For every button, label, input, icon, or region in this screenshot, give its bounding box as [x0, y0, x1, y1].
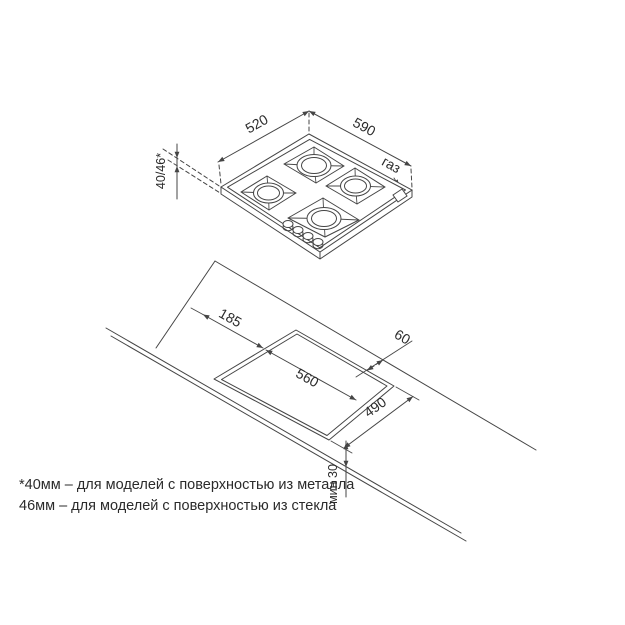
cutout-depth-label: 490: [361, 393, 389, 420]
cutout-offset-ext-line: [191, 308, 203, 315]
hob-thickness-dim: 40/46*: [154, 144, 221, 199]
footnotes: *40мм – для моделей с поверхностью из ме…: [19, 477, 355, 514]
footnote-line-2: 46мм – для моделей с поверхностью из сте…: [19, 498, 337, 514]
hob-width-label: 520: [242, 111, 270, 136]
cutout-front-min-dim: мин 30: [326, 441, 346, 504]
hob-isometric-view: 520 590 газ: [154, 111, 412, 259]
counter-left-edge: [156, 261, 215, 348]
hob-gas-label: газ: [379, 153, 403, 176]
cutout-width-label: 560: [293, 365, 321, 390]
cutout-back-gap-label: 60: [392, 326, 414, 348]
hob-top-face: [221, 134, 412, 252]
installation-diagram: 520 590 газ: [0, 0, 625, 625]
cutout-offset-label: 185: [216, 305, 244, 330]
page: 520 590 газ: [0, 0, 625, 625]
footnote-line-1: *40мм – для моделей с поверхностью из ме…: [19, 477, 355, 493]
cutout-depth-dim: 490: [331, 387, 419, 453]
hob-width-ext-line-2: [219, 165, 221, 184]
hob-depth-ext-line: [411, 169, 412, 188]
hob-thickness-label: 40/46*: [154, 153, 168, 189]
counter-back-edge: [215, 261, 536, 450]
